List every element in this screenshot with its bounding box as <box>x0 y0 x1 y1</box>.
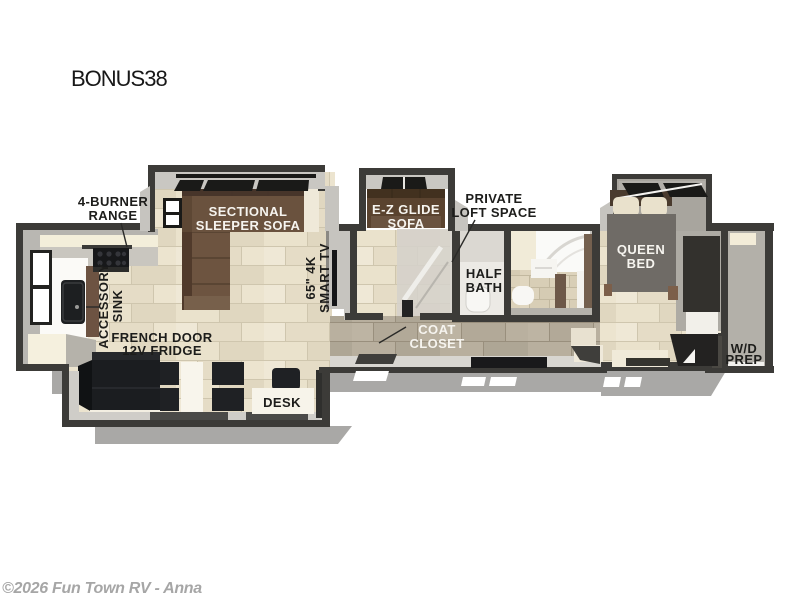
svg-text:PRIVATE: PRIVATE <box>465 191 522 206</box>
svg-text:12V FRIDGE: 12V FRIDGE <box>122 343 202 358</box>
svg-text:4-BURNER: 4-BURNER <box>78 194 149 209</box>
svg-text:DESK: DESK <box>263 395 301 410</box>
svg-text:QUEEN: QUEEN <box>617 242 665 257</box>
svg-text:PREP: PREP <box>725 352 762 367</box>
svg-text:SINK: SINK <box>110 289 125 322</box>
svg-text:©2026 Fun Town RV - Anna: ©2026 Fun Town RV - Anna <box>2 580 202 597</box>
svg-text:HALF: HALF <box>466 266 502 281</box>
svg-text:CLOSET: CLOSET <box>409 336 464 351</box>
svg-text:LOFT SPACE: LOFT SPACE <box>451 205 536 220</box>
svg-text:BATH: BATH <box>466 280 503 295</box>
svg-text:E-Z GLIDE: E-Z GLIDE <box>372 202 440 217</box>
svg-text:SOFA: SOFA <box>388 216 425 231</box>
svg-text:65" 4K: 65" 4K <box>303 256 318 299</box>
svg-text:COAT: COAT <box>418 322 455 337</box>
svg-text:SECTIONAL: SECTIONAL <box>209 204 288 219</box>
svg-text:RANGE: RANGE <box>89 208 138 223</box>
svg-text:SLEEPER SOFA: SLEEPER SOFA <box>196 218 301 233</box>
svg-text:BED: BED <box>627 256 656 271</box>
svg-text:ACCESSORY: ACCESSORY <box>96 263 111 348</box>
svg-text:SMART TV: SMART TV <box>317 243 332 313</box>
svg-text:BONUS38: BONUS38 <box>71 66 167 91</box>
